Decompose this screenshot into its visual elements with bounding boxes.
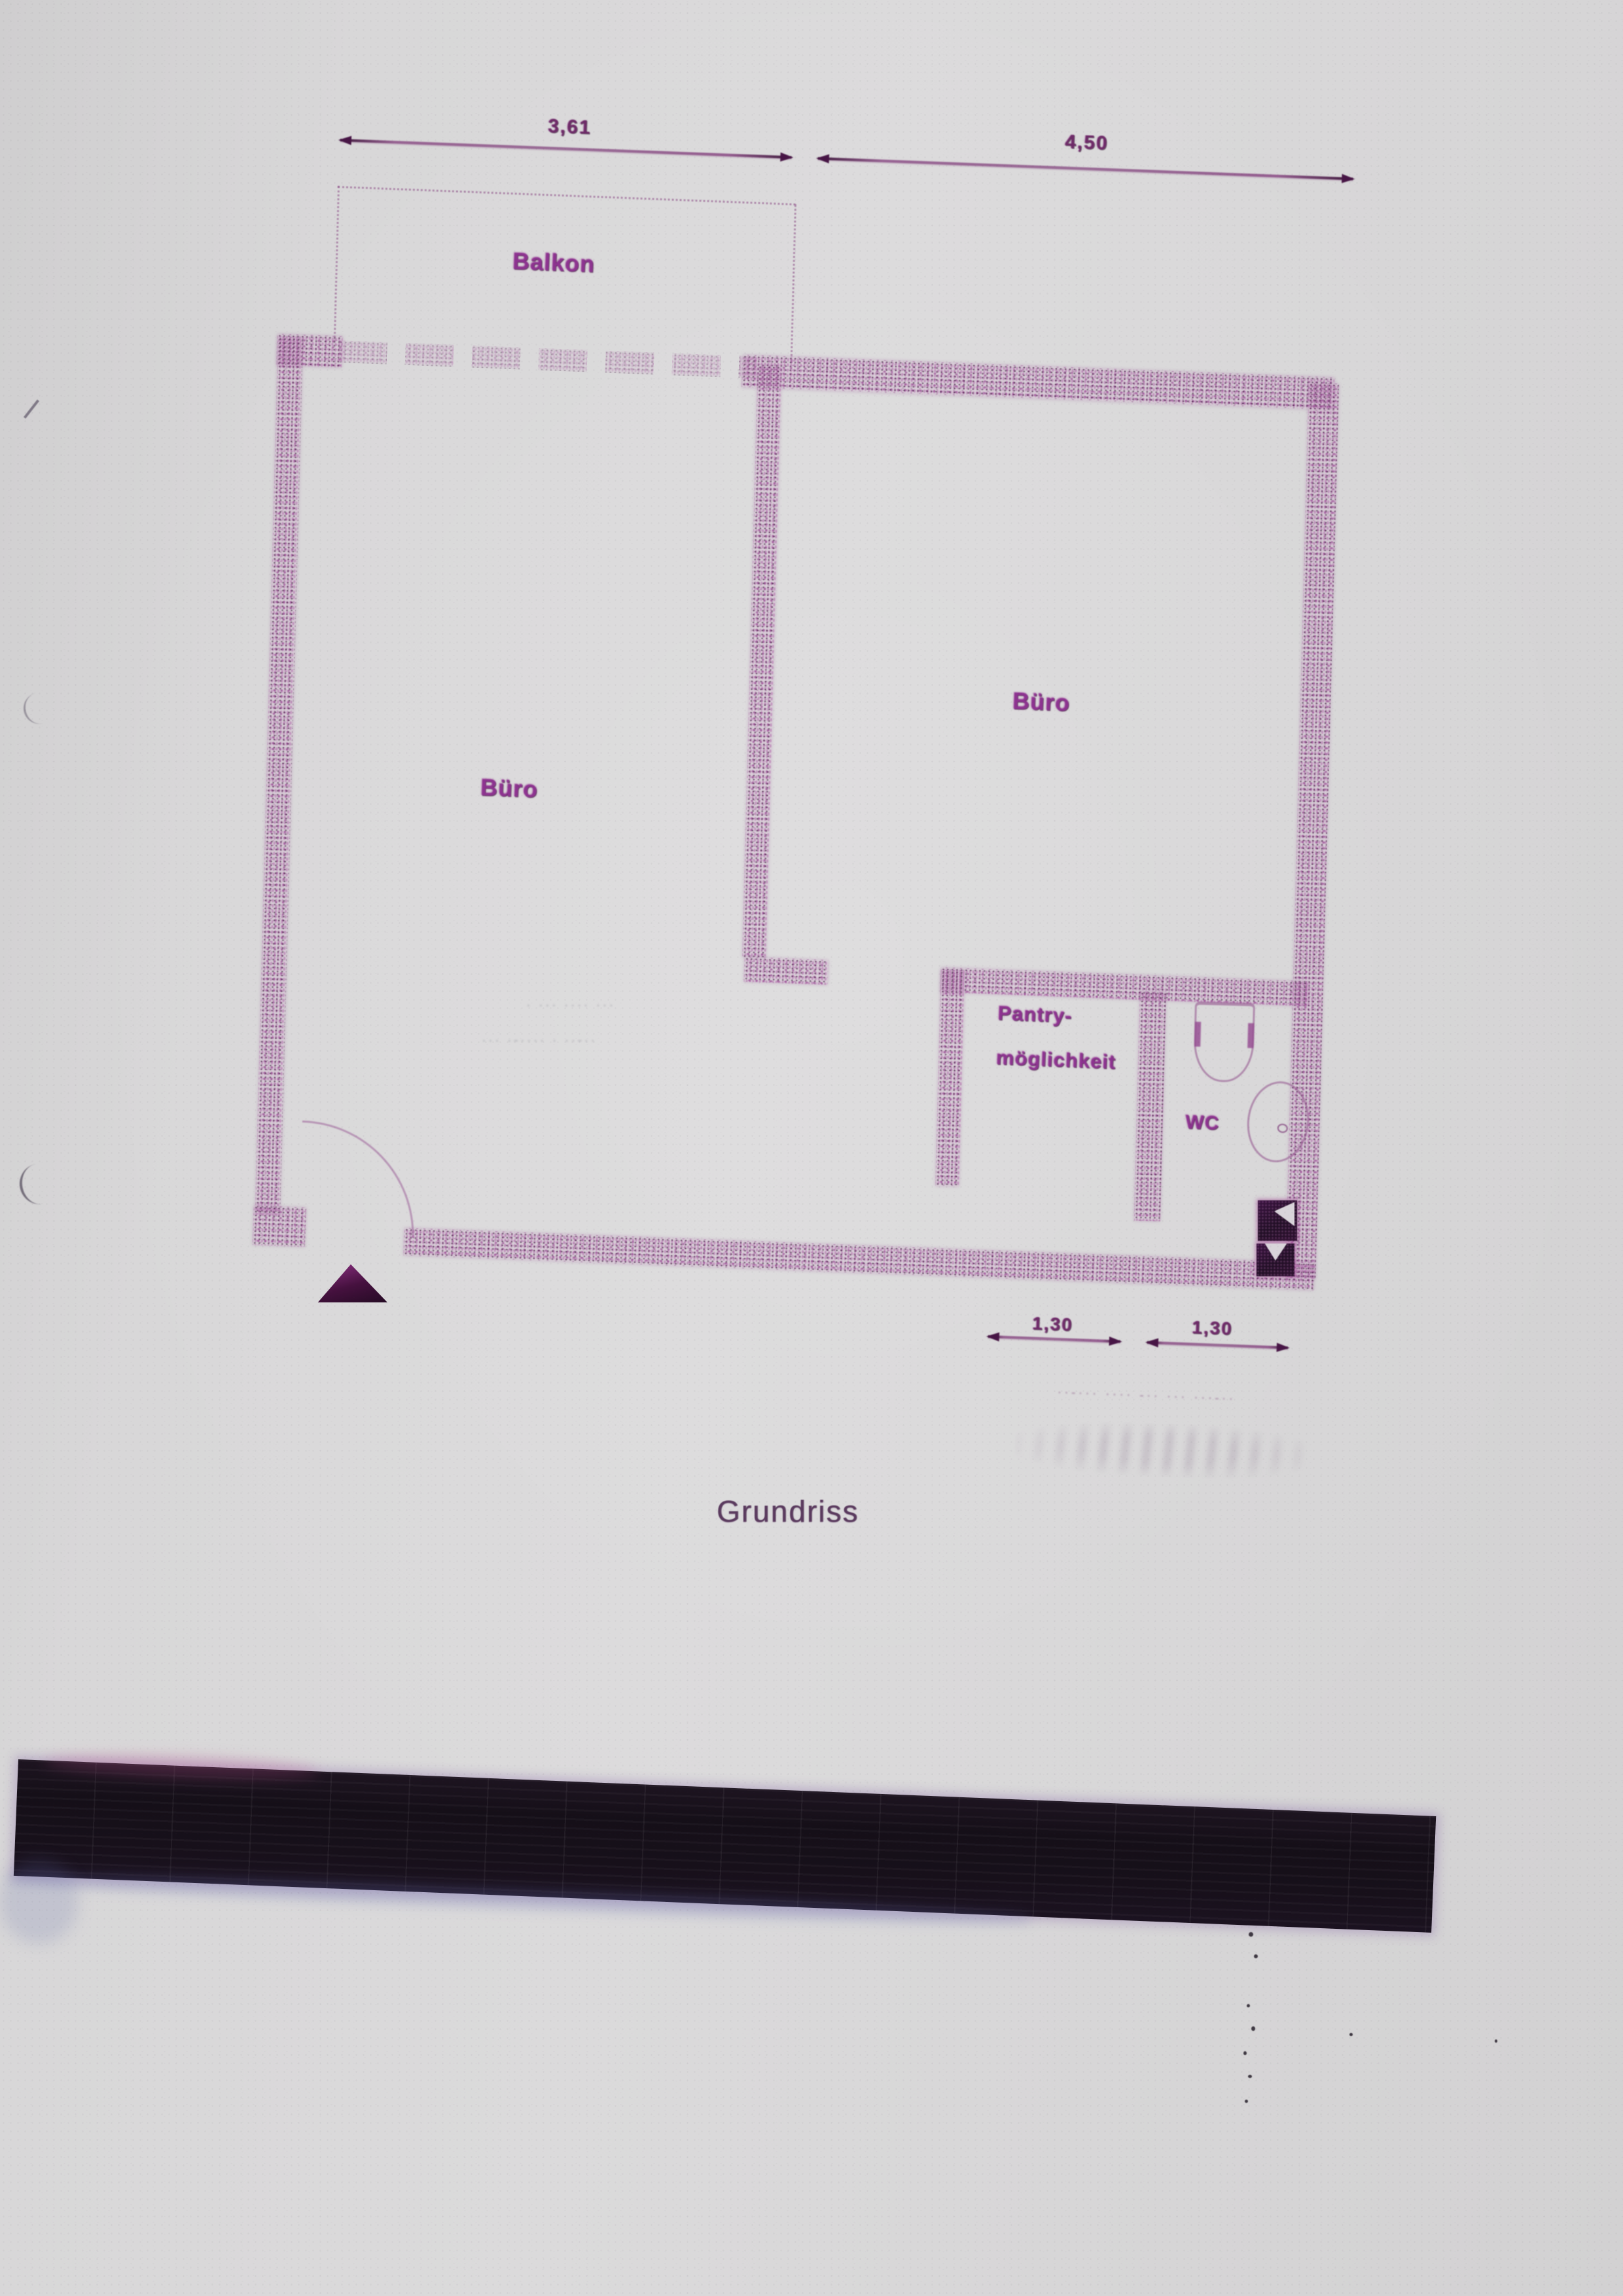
- scan-speck: [1247, 2004, 1250, 2007]
- scan-speck: [1254, 1954, 1258, 1958]
- scan-speck: [1249, 1932, 1253, 1937]
- room-label-buero-right: Büro: [1012, 687, 1071, 717]
- dimension-line-bottom-left: [988, 1335, 1120, 1343]
- toilet-symbol: [1193, 1001, 1255, 1083]
- wall-bottom-outer: [403, 1228, 1315, 1290]
- dimension-line-top-right: [818, 157, 1353, 180]
- entrance-door-arc: [299, 1121, 417, 1238]
- entrance-triangle-marker: [314, 1263, 387, 1302]
- shaft-symbol-upper: [1258, 1200, 1297, 1241]
- dimension-value-top-left: 3,61: [548, 115, 592, 139]
- scan-artifact-arc-lower: [16, 1160, 62, 1207]
- dimension-value-top-right: 4,50: [1065, 131, 1109, 155]
- room-label-pantry-line1: Pantry-: [997, 991, 1118, 1040]
- wall-middle: [742, 365, 781, 958]
- scan-speck: [636, 1804, 639, 1806]
- wall-bottom-left-foot: [253, 1206, 306, 1247]
- room-label-wc: WC: [1185, 1111, 1220, 1135]
- illegible-handwritten-note: ··-··· ···· -·· ··· ···-··: [1057, 1385, 1236, 1407]
- wall-pantry-top: [940, 967, 1309, 1007]
- scan-speck: [1245, 2100, 1248, 2103]
- wall-pantry-left: [935, 970, 965, 1187]
- wall-left-outer: [255, 337, 303, 1215]
- shaft-symbol-lower: [1257, 1244, 1294, 1276]
- scan-artifact-tick: [24, 399, 39, 418]
- redaction-smudge-left: [0, 1859, 79, 1944]
- dimension-line-top-left: [340, 139, 792, 158]
- wall-middle-stub: [744, 957, 829, 985]
- room-label-buero-left: Büro: [480, 774, 539, 803]
- toilet-hinge-left: [1194, 1022, 1201, 1047]
- shaft-wedge: [1274, 1202, 1294, 1226]
- wall-window-band: [338, 340, 758, 379]
- dimension-line-bottom-right: [1147, 1341, 1288, 1349]
- wall-top-right: [741, 355, 1334, 410]
- balcony-left-edge: [334, 186, 340, 342]
- dimension-value-bottom-right: 1,30: [1192, 1317, 1234, 1339]
- illegible-room-note-line2: ··· ·-···· · ··-··: [482, 1033, 597, 1049]
- toilet-hinge-right: [1247, 1023, 1254, 1048]
- wall-pantry-wc-divider: [1134, 992, 1166, 1221]
- sink-drain: [1277, 1123, 1289, 1134]
- scanned-page: 3,61 4,50 Balkon Büro Büro Pantry- mögli…: [0, 0, 1623, 2296]
- scan-artifact-arc-upper: [20, 689, 59, 727]
- shaft-wedge: [1265, 1244, 1287, 1261]
- illegible-ghost-print: [1014, 1418, 1317, 1483]
- balcony-top-edge: [338, 186, 796, 206]
- scan-speck: [1349, 2033, 1353, 2036]
- redaction-bar: [14, 1759, 1436, 1933]
- illegible-room-note-line1: · ··· ···· ···: [526, 997, 615, 1013]
- scan-speck: [1495, 2039, 1497, 2043]
- dimension-value-bottom-left: 1,30: [1032, 1313, 1074, 1335]
- room-label-pantry-line2: möglichkeit: [995, 1035, 1117, 1085]
- scan-speck: [1243, 2051, 1247, 2055]
- page-title: Grundriss: [717, 1494, 859, 1529]
- room-label-pantry: Pantry- möglichkeit: [995, 991, 1118, 1085]
- scan-speck: [1248, 2075, 1252, 2078]
- room-label-balkon: Balkon: [512, 247, 596, 278]
- scan-speck: [149, 1859, 154, 1863]
- scan-speck: [1251, 2026, 1255, 2031]
- balcony-right-edge: [791, 204, 796, 361]
